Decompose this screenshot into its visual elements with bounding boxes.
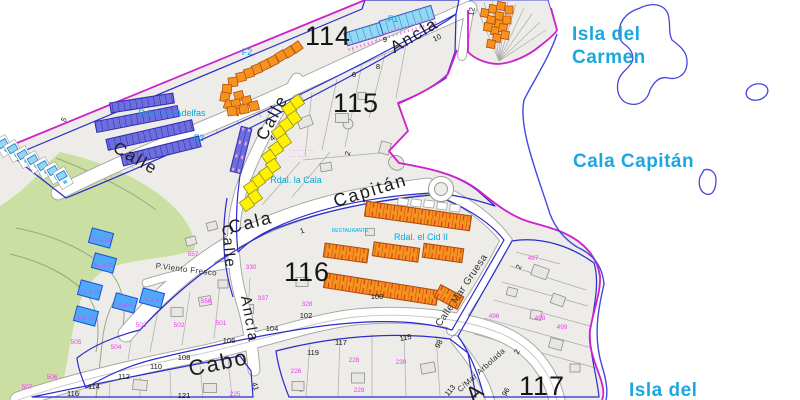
- urbanization-label-restaurante: RESTAURANTE: [332, 228, 370, 234]
- urbanization-label-f2: F2: [242, 47, 253, 57]
- urbanization-label-la-cala: Rdal. la Cala: [270, 175, 322, 185]
- orange-house: [483, 22, 492, 31]
- map-canvas[interactable]: Isla del Carmen Cala Capitán Isla del 11…: [0, 0, 800, 400]
- urbanization-label-adelfas: Rdal. las Adelfas: [138, 108, 206, 118]
- tiny-island: [699, 169, 716, 194]
- cadastral-map: Isla del Carmen Cala Capitán Isla del 11…: [0, 0, 800, 400]
- house-number: 6: [352, 70, 356, 79]
- orange-house: [239, 104, 250, 115]
- house-number: 114: [88, 382, 100, 391]
- parcel-number: 556: [201, 298, 212, 305]
- house-number: 121: [178, 391, 191, 400]
- building-footprint: [570, 364, 580, 372]
- parcel-number: 502: [174, 322, 185, 329]
- building-footprint: [292, 382, 304, 391]
- zone-number-114: 114: [305, 21, 351, 51]
- orange-house: [248, 100, 259, 111]
- garage: [437, 202, 448, 210]
- parcel-number: 499: [557, 324, 568, 331]
- label-isla-del-carmen-2: Carmen: [572, 47, 646, 68]
- house-number: 104: [266, 324, 279, 333]
- parcel-number: 498: [535, 315, 546, 322]
- parcel-number: 229: [354, 387, 365, 394]
- house-number: 8: [376, 62, 380, 71]
- house-number: 108: [178, 353, 191, 362]
- building-footprint: [320, 162, 332, 172]
- building-footprint: [133, 379, 148, 390]
- parcel-number: 496: [489, 313, 500, 320]
- house-number: 116: [67, 389, 79, 398]
- building-footprint: [352, 373, 365, 383]
- orange-house: [505, 6, 513, 14]
- villa-label: 21 al 24: [91, 238, 111, 244]
- house-number: 5: [59, 116, 69, 124]
- orange-house: [496, 1, 505, 10]
- zone-number-117: 117: [519, 371, 565, 400]
- house-number: 9: [383, 35, 387, 44]
- orange-house: [227, 106, 237, 116]
- parcel-number: 328: [302, 301, 313, 308]
- orange-house: [503, 16, 511, 24]
- parcel-number: 330: [246, 264, 257, 271]
- garage: [450, 204, 461, 212]
- orange-house: [500, 30, 509, 39]
- house-number: 117: [335, 338, 347, 347]
- label-isla-del: Isla del: [629, 380, 697, 400]
- parcel-number: 504: [111, 344, 122, 351]
- parcel-number: 557: [188, 251, 199, 258]
- garage: [424, 200, 435, 208]
- zone-number-115: 115: [333, 88, 379, 118]
- roundabout: [429, 177, 454, 202]
- parcel-number: 507: [22, 384, 33, 391]
- villa-label: 17 al 20: [94, 263, 114, 269]
- villa-label: 5 al 8: [118, 303, 131, 309]
- micro-annotation: ········: [289, 154, 310, 160]
- building-footprint: [420, 362, 436, 374]
- building-footprint: [204, 384, 217, 393]
- garage: [398, 198, 409, 206]
- house-number: 110: [150, 362, 162, 371]
- urbanization-label-cid: Rdal. el Cid II: [394, 232, 448, 242]
- label-cala-capitan: Cala Capitán: [573, 151, 694, 172]
- orange-house: [486, 39, 495, 48]
- label-isla-del-carmen-1: Isla del: [572, 24, 640, 45]
- parcel-number: 225: [230, 391, 241, 398]
- parcel-number: 503: [136, 322, 147, 329]
- parcel-number: 506: [47, 374, 58, 381]
- urbanization-label-f1: F1: [388, 14, 399, 24]
- house-number: 106: [223, 336, 236, 345]
- house-number: 100: [371, 292, 384, 301]
- parcel-number: 337: [258, 295, 269, 302]
- parcel-number: 226: [291, 368, 302, 375]
- parcel-number: 228: [349, 357, 360, 364]
- villa-label: 13 al 16: [80, 290, 100, 296]
- garage: [411, 199, 422, 207]
- parcel-number: 230: [396, 359, 407, 366]
- house-number: 112: [118, 372, 130, 381]
- parcel-number: 501: [216, 320, 227, 327]
- parcel-number: 497: [528, 255, 539, 262]
- building-footprint: [218, 280, 228, 288]
- zone-number-116: 116: [284, 257, 330, 287]
- villa-label: 1 al 4: [145, 298, 158, 304]
- villa-label: 9 al 12: [78, 316, 95, 322]
- urbanization-label-f3: F3: [194, 133, 205, 143]
- building-footprint: [171, 308, 183, 317]
- house-number: 102: [300, 311, 313, 320]
- house-number: 119: [307, 348, 319, 357]
- small-island: [744, 81, 769, 102]
- parcel-number: 505: [71, 339, 82, 346]
